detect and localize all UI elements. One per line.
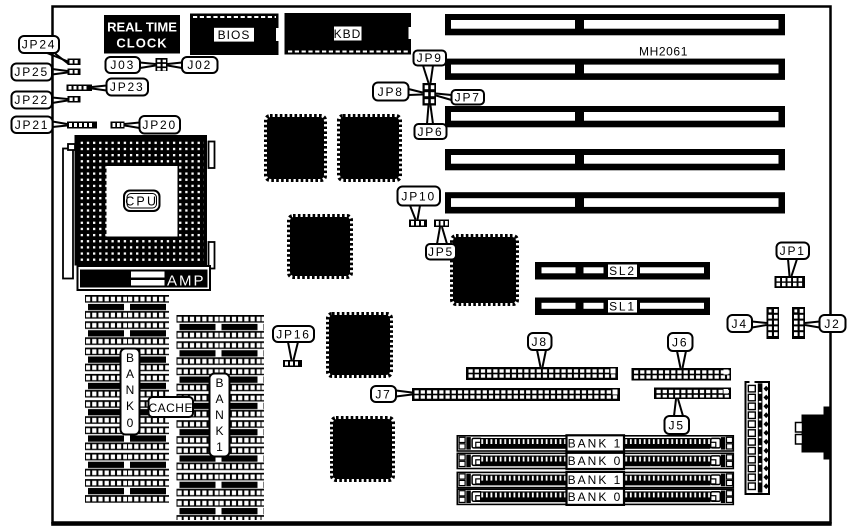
svg-text:JP10: JP10: [401, 190, 436, 204]
svg-text:J7: J7: [375, 388, 391, 402]
svg-text:JP8: JP8: [378, 85, 404, 99]
svg-text:KBD: KBD: [334, 27, 362, 41]
svg-text:BIOS: BIOS: [218, 28, 251, 42]
svg-text:K: K: [126, 399, 134, 413]
svg-text:BANK 1: BANK 1: [568, 473, 623, 487]
svg-text:K: K: [215, 424, 223, 438]
svg-text:BANK 0: BANK 0: [568, 454, 623, 468]
svg-text:B: B: [215, 376, 223, 390]
svg-text:JP1: JP1: [780, 244, 806, 258]
svg-text:MH2061: MH2061: [639, 45, 688, 59]
svg-text:A: A: [126, 367, 134, 381]
svg-text:J5: J5: [669, 419, 685, 433]
svg-text:N: N: [215, 408, 224, 422]
svg-text:J03: J03: [110, 58, 135, 72]
svg-text:SL2: SL2: [609, 264, 636, 278]
svg-text:JP23: JP23: [110, 80, 145, 94]
svg-text:CACHE: CACHE: [148, 401, 193, 415]
svg-text:JP25: JP25: [14, 65, 49, 79]
svg-text:BANK 1: BANK 1: [568, 437, 623, 451]
svg-text:J4: J4: [732, 317, 748, 331]
svg-text:1: 1: [216, 440, 223, 454]
svg-text:J6: J6: [672, 336, 688, 350]
svg-text:JP9: JP9: [417, 51, 443, 65]
svg-text:REAL TIME: REAL TIME: [107, 20, 177, 35]
svg-text:JP5: JP5: [428, 245, 454, 259]
svg-text:AMP: AMP: [167, 273, 206, 290]
svg-text:0: 0: [127, 416, 134, 430]
svg-text:SL1: SL1: [609, 299, 636, 313]
svg-text:BANK 0: BANK 0: [568, 490, 623, 504]
svg-text:JP7: JP7: [455, 91, 481, 105]
svg-text:JP21: JP21: [15, 118, 50, 132]
svg-text:A: A: [215, 392, 223, 406]
svg-text:J8: J8: [532, 335, 548, 349]
svg-text:CLOCK: CLOCK: [116, 36, 167, 51]
svg-text:B: B: [126, 351, 134, 365]
svg-text:J2: J2: [824, 317, 840, 331]
svg-text:JP22: JP22: [14, 93, 49, 107]
svg-text:N: N: [126, 383, 135, 397]
svg-text:J02: J02: [187, 58, 212, 72]
svg-text:JP20: JP20: [142, 118, 177, 132]
svg-text:JP6: JP6: [417, 125, 443, 139]
svg-text:CPU: CPU: [125, 195, 158, 209]
svg-text:JP16: JP16: [276, 328, 311, 342]
svg-text:JP24: JP24: [22, 38, 57, 52]
